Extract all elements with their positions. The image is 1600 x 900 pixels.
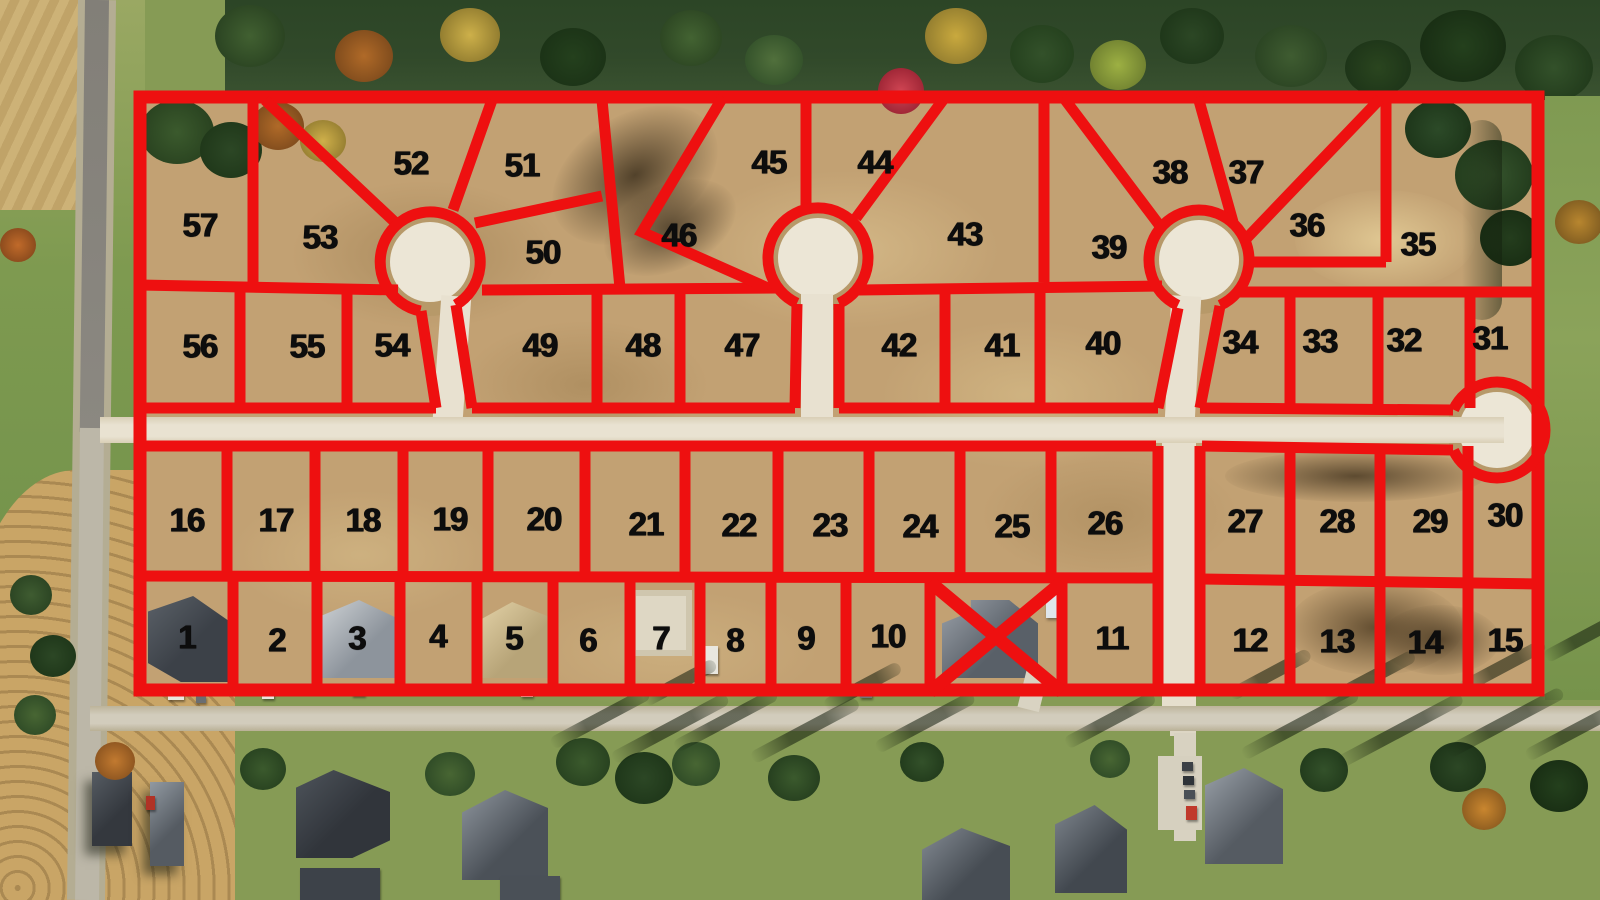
lot-number-14: 14 — [1408, 626, 1443, 659]
lot-number-57: 57 — [183, 209, 218, 242]
lot-number-26: 26 — [1088, 507, 1123, 540]
lot-number-50: 50 — [526, 236, 561, 269]
lot-number-36: 36 — [1290, 209, 1325, 242]
lot-number-27: 27 — [1228, 505, 1263, 538]
lot-number-52: 52 — [394, 147, 429, 180]
lot-number-13: 13 — [1320, 625, 1355, 658]
lot-number-44: 44 — [858, 146, 893, 179]
lot-number-41: 41 — [985, 329, 1020, 362]
lot-number-22: 22 — [722, 509, 757, 542]
lot-number-56: 56 — [183, 330, 218, 363]
lot-number-33: 33 — [1303, 325, 1338, 358]
lot-number-39: 39 — [1092, 231, 1127, 264]
lot-number-45: 45 — [752, 146, 787, 179]
lot-number-4: 4 — [429, 620, 446, 653]
lot-number-38: 38 — [1153, 156, 1188, 189]
lot-number-16: 16 — [170, 504, 205, 537]
lot-number-6: 6 — [579, 624, 596, 657]
lot-number-48: 48 — [626, 329, 661, 362]
lot-number-9: 9 — [797, 622, 814, 655]
lot-number-17: 17 — [259, 504, 294, 537]
lot-number-5: 5 — [505, 622, 522, 655]
lot-number-51: 51 — [505, 149, 540, 182]
lot-number-30: 30 — [1488, 499, 1523, 532]
lot-number-8: 8 — [726, 624, 743, 657]
lot-number-15: 15 — [1488, 624, 1523, 657]
lot-number-29: 29 — [1413, 505, 1448, 538]
lot-number-43: 43 — [948, 218, 983, 251]
lot-number-31: 31 — [1473, 322, 1508, 355]
lot-number-49: 49 — [523, 329, 558, 362]
lot-number-46: 46 — [662, 219, 697, 252]
lot-number-2: 2 — [268, 624, 285, 657]
lot-number-53: 53 — [303, 221, 338, 254]
lot-number-23: 23 — [813, 509, 848, 542]
lot-number-19: 19 — [433, 503, 468, 536]
lot-number-12: 12 — [1233, 624, 1268, 657]
lot-number-3: 3 — [348, 622, 365, 655]
lot-numbers-layer: 1234567891011121314151617181920212223242… — [0, 0, 1600, 900]
lot-number-28: 28 — [1320, 505, 1355, 538]
lot-number-10: 10 — [871, 620, 906, 653]
lot-number-24: 24 — [903, 510, 938, 543]
lot-number-7: 7 — [652, 622, 669, 655]
lot-number-47: 47 — [725, 329, 760, 362]
lot-number-25: 25 — [995, 510, 1030, 543]
lot-number-34: 34 — [1223, 326, 1258, 359]
lot-number-35: 35 — [1401, 228, 1436, 261]
lot-number-54: 54 — [375, 329, 410, 362]
lot-number-37: 37 — [1229, 156, 1264, 189]
lot-number-1: 1 — [178, 621, 195, 654]
lot-number-32: 32 — [1387, 324, 1422, 357]
lot-number-18: 18 — [346, 504, 381, 537]
lot-number-40: 40 — [1086, 327, 1121, 360]
lot-number-42: 42 — [882, 329, 917, 362]
lot-number-21: 21 — [629, 508, 664, 541]
lot-number-11: 11 — [1096, 622, 1129, 655]
lot-number-20: 20 — [527, 503, 562, 536]
aerial-plat-map: 1234567891011121314151617181920212223242… — [0, 0, 1600, 900]
lot-number-55: 55 — [290, 330, 325, 363]
